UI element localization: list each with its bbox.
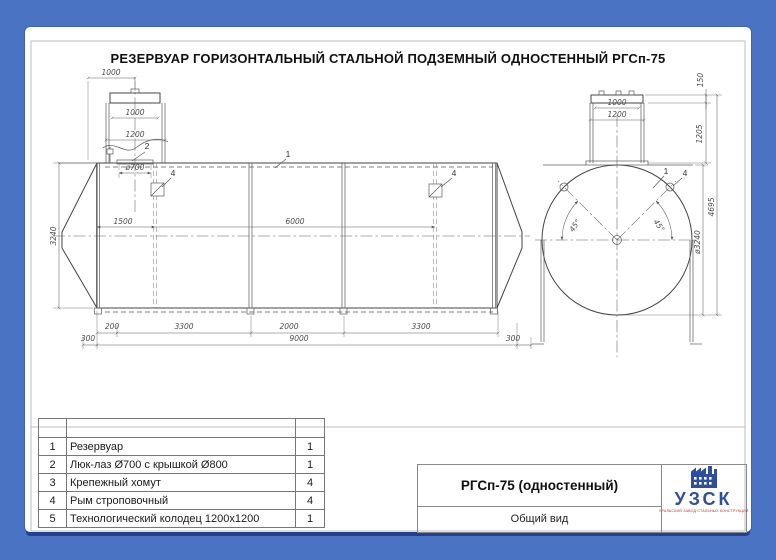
svg-text:1: 1 — [664, 166, 669, 176]
sling-lug-left — [151, 183, 164, 196]
view-name: Общий вид — [418, 507, 661, 531]
end-view: 45° 45° — [532, 73, 722, 357]
sling-lug-right — [429, 184, 442, 197]
part-name: Технологический колодец 1200x1200 — [67, 510, 296, 528]
svg-text:4: 4 — [452, 168, 457, 178]
svg-text:1000: 1000 — [125, 108, 144, 117]
model-name: РГСп-75 (одностенный) — [418, 465, 661, 507]
drawing-sheet: РЕЗЕРВУАР ГОРИЗОНТАЛЬНЫЙ СТАЛЬНОЙ ПОДЗЕМ… — [25, 27, 751, 532]
svg-text:4: 4 — [683, 168, 688, 178]
svg-text:200: 200 — [105, 322, 120, 331]
svg-text:3300: 3300 — [411, 322, 430, 331]
logo-text: УЗСК — [674, 490, 732, 508]
table-row: 5 Технологический колодец 1200x1200 1 — [39, 510, 325, 528]
part-number: 5 — [39, 510, 67, 528]
part-qty: 1 — [296, 456, 325, 474]
part-number: 1 — [39, 438, 67, 456]
lug-axis-lines — [154, 163, 437, 308]
svg-text:1000: 1000 — [101, 68, 120, 77]
factory-icon — [689, 466, 719, 489]
table-row: 3 Крепежный хомут 4 — [39, 474, 325, 492]
table-row: 1 Резервуар 1 — [39, 438, 325, 456]
svg-text:4: 4 — [171, 168, 176, 178]
table-row: 4 Рым строповочный 4 — [39, 492, 325, 510]
vent-pin — [107, 147, 113, 163]
logo-tagline: УРАЛЬСКИЙ ЗАВОД СТАЛЬНЫХ КОНСТРУКЦИЙ — [659, 508, 749, 513]
part-qty: 4 — [296, 492, 325, 510]
parts-table: 1 Резервуар 1 2 Люк-лаз Ø700 с крышкой Ø… — [38, 418, 325, 528]
part-number: 4 — [39, 492, 67, 510]
screenshot-root: { "page": { "title": "РЕЗЕРВУАР ГОРИЗОНТ… — [0, 0, 776, 560]
svg-text:45°: 45° — [652, 218, 667, 234]
svg-text:1205: 1205 — [695, 124, 704, 143]
svg-text:6000: 6000 — [285, 217, 304, 226]
part-qty: 1 — [296, 438, 325, 456]
table-header-row — [39, 419, 325, 438]
svg-text:3240: 3240 — [49, 226, 58, 245]
part-name: Резервуар — [67, 438, 296, 456]
svg-text:4695: 4695 — [707, 197, 716, 216]
svg-text:1: 1 — [286, 149, 291, 159]
svg-text:1500: 1500 — [113, 217, 132, 226]
svg-text:ø700: ø700 — [125, 163, 145, 172]
end-view-dimensions: 150 1205 4695 ø3240 — [621, 73, 722, 315]
side-view-callouts: 2 4 1 4 — [132, 141, 457, 187]
part-qty: 4 — [296, 474, 325, 492]
table-row: 2 Люк-лаз Ø700 с крышкой Ø800 1 — [39, 456, 325, 474]
company-logo: УЗСК УРАЛЬСКИЙ ЗАВОД СТАЛЬНЫХ КОНСТРУКЦИ… — [662, 465, 745, 532]
svg-text:1000: 1000 — [607, 98, 626, 107]
svg-text:ø3240: ø3240 — [693, 230, 702, 255]
svg-text:1200: 1200 — [125, 130, 144, 139]
part-qty: 1 — [296, 510, 325, 528]
part-name: Люк-лаз Ø700 с крышкой Ø800 — [67, 456, 296, 474]
side-view: 1000 1000 1200 ø700 3240 1500 6000 — [49, 68, 531, 349]
part-name: Крепежный хомут — [67, 474, 296, 492]
part-name: Рым строповочный — [67, 492, 296, 510]
svg-text:2000: 2000 — [279, 322, 298, 331]
svg-text:150: 150 — [696, 73, 705, 88]
part-number: 3 — [39, 474, 67, 492]
svg-text:45°: 45° — [567, 217, 582, 233]
part-number: 2 — [39, 456, 67, 474]
svg-text:1200: 1200 — [607, 110, 626, 119]
svg-text:9000: 9000 — [289, 334, 308, 343]
svg-text:300: 300 — [506, 334, 521, 343]
svg-text:3300: 3300 — [174, 322, 193, 331]
title-block: РГСп-75 (одностенный) Общий вид УЗСК — [417, 464, 747, 533]
side-view-dimensions: 1000 1000 1200 ø700 3240 1500 6000 — [49, 68, 531, 349]
svg-text:2: 2 — [145, 141, 150, 151]
title-block-left: РГСп-75 (одностенный) Общий вид — [418, 465, 662, 532]
svg-text:300: 300 — [81, 334, 96, 343]
